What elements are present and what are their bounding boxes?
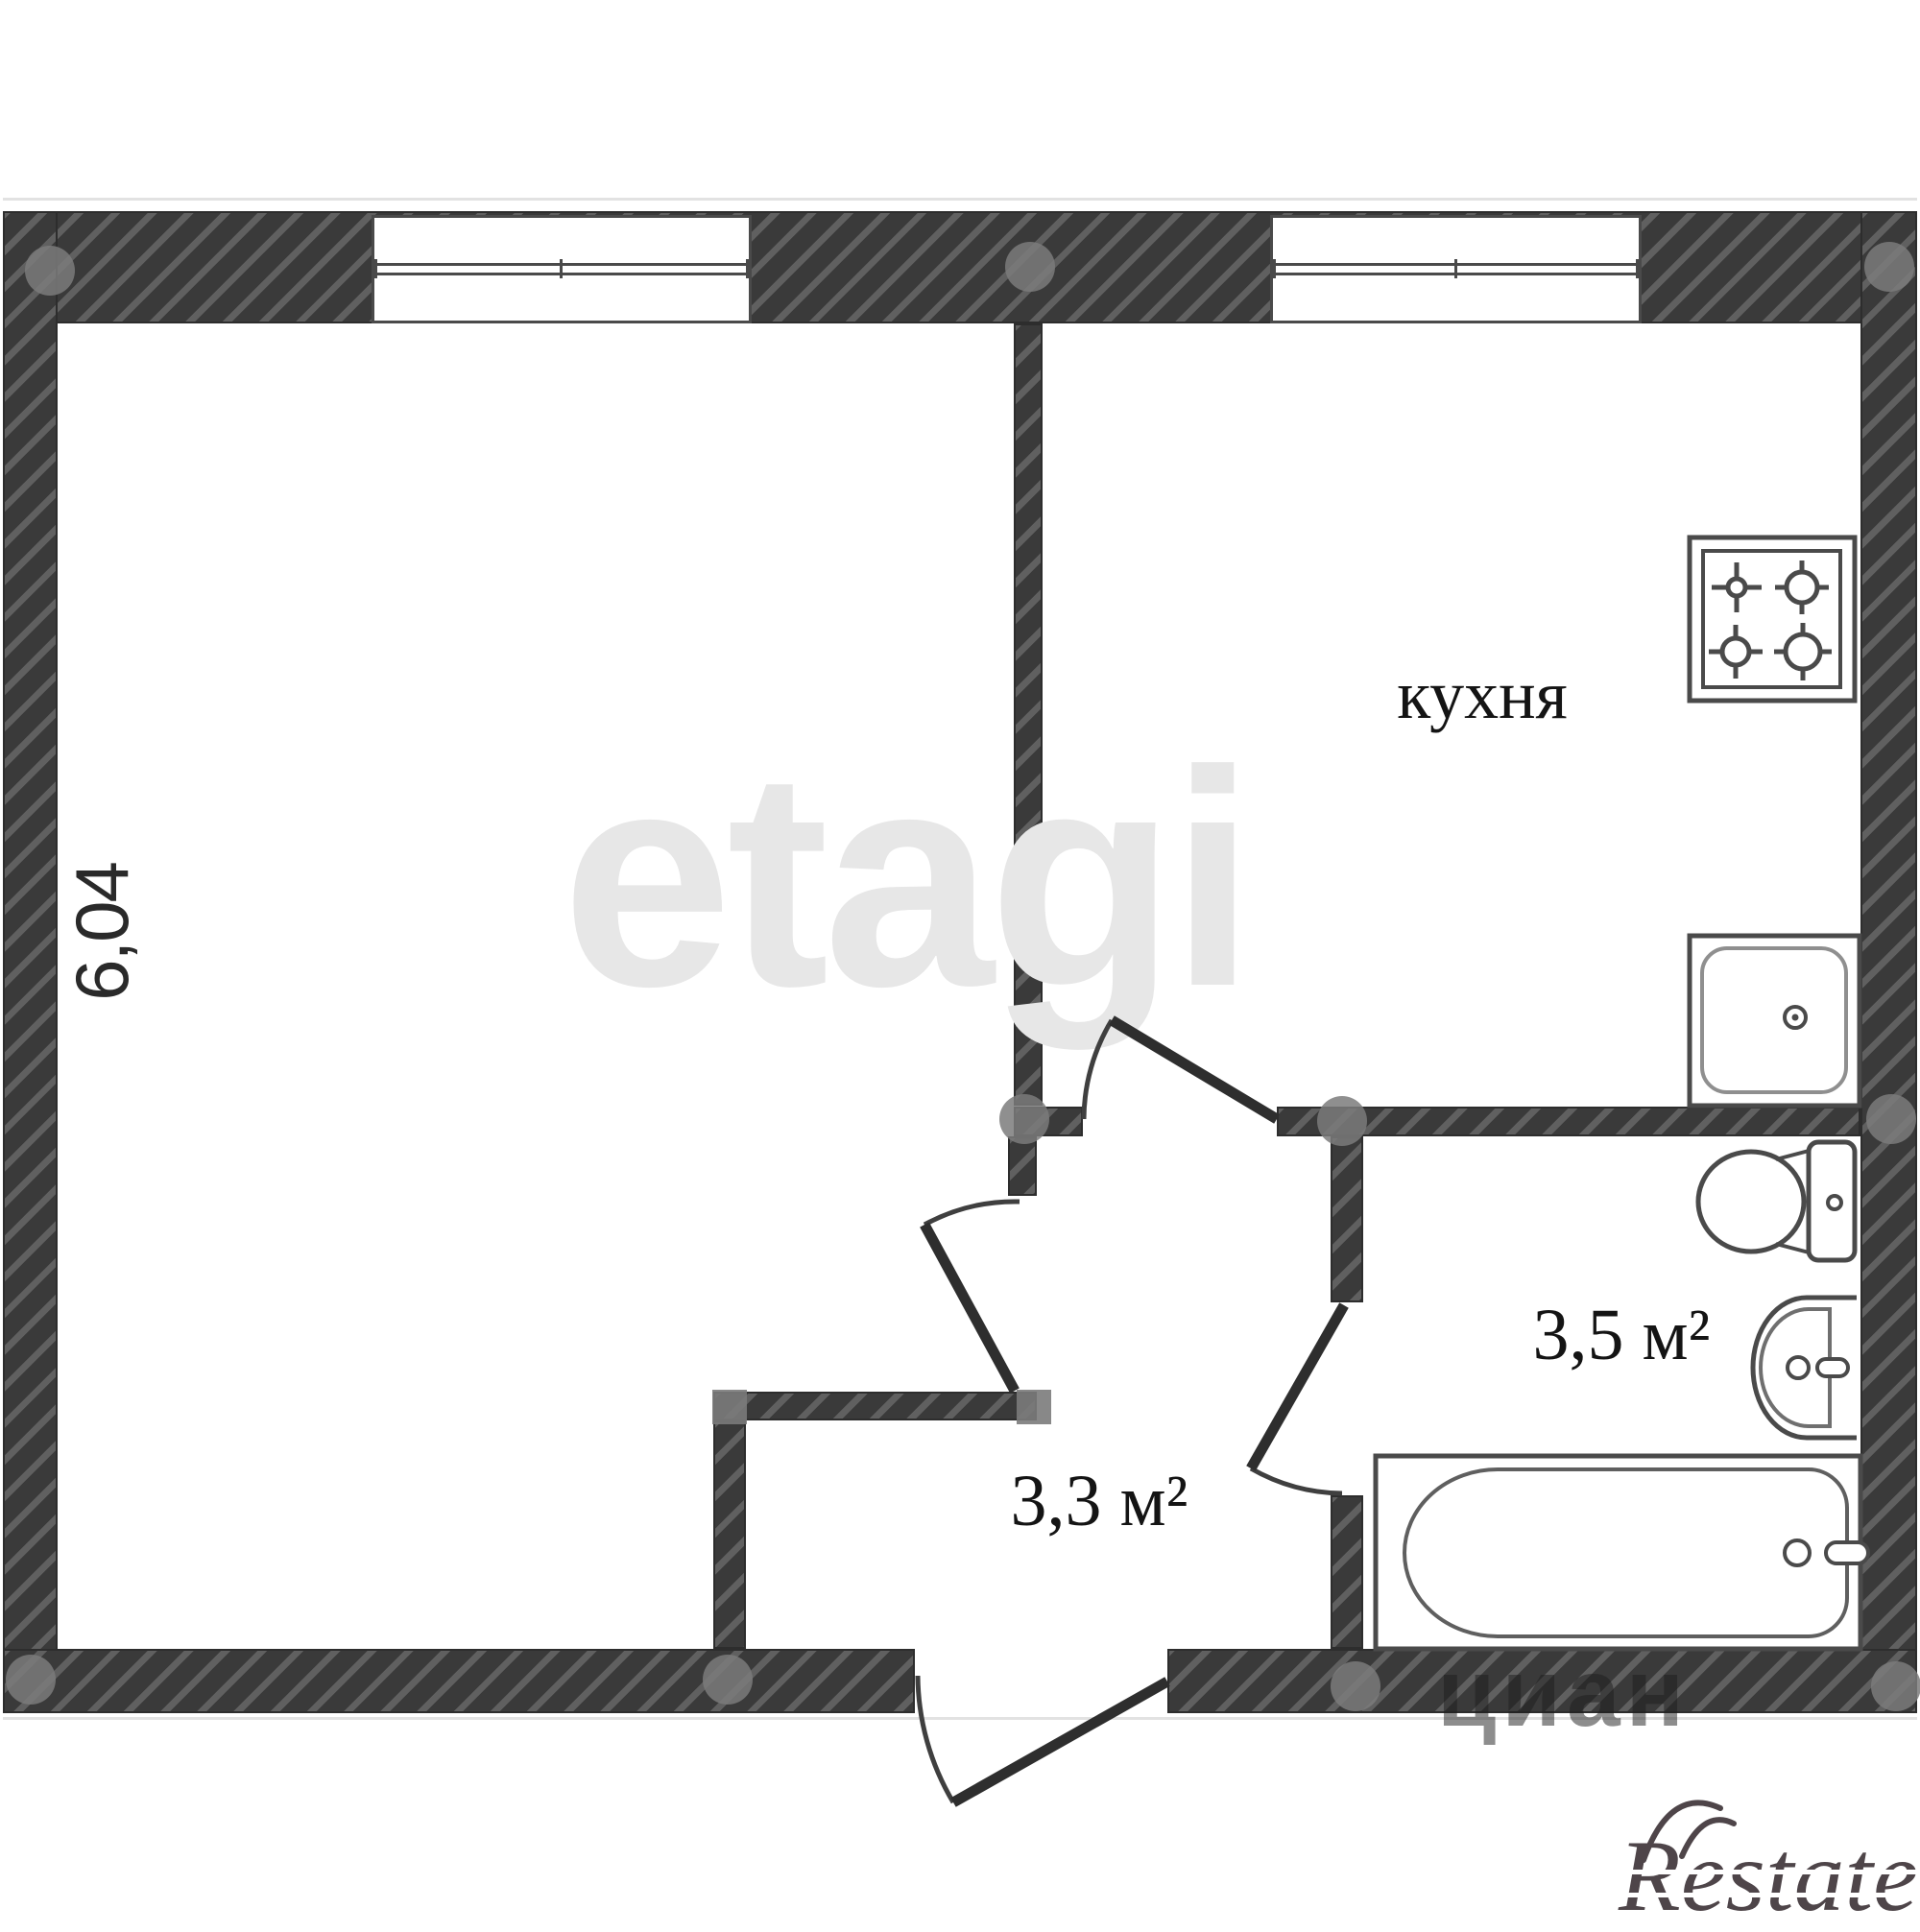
toilet-icon [1698,1142,1855,1260]
living-room-area-label: 6,04 [38,869,165,995]
floor-plan: etagi циан [0,0,1920,1920]
entrance-door-leaf [953,1682,1167,1802]
living-room-door-leaf [924,1225,1015,1391]
kitchen-door-leaf [1112,1020,1277,1119]
washbasin-icon [1753,1298,1857,1438]
kitchen-door-arc [1084,1020,1112,1119]
kitchen-label: кухня [1380,660,1584,729]
stove-icon [1690,537,1855,701]
bathroom-door-leaf [1251,1305,1344,1468]
bathroom-area-label: 3,5 м² [1515,1300,1728,1371]
restate-logo-swirl-icon [1632,1787,1747,1864]
logo-engrave-line [1613,1870,1920,1874]
kitchen-sink-icon [1690,936,1860,1106]
living-room-door-arc [924,1202,1020,1225]
hallway-area-label: 3,3 м² [993,1466,1206,1537]
bathroom-door-arc [1251,1468,1342,1493]
entrance-door-arc [918,1676,953,1802]
bathtub-icon [1376,1456,1868,1649]
fixtures-and-doors-layer [0,0,1920,1920]
logo-engrave-line [1613,1893,1920,1897]
